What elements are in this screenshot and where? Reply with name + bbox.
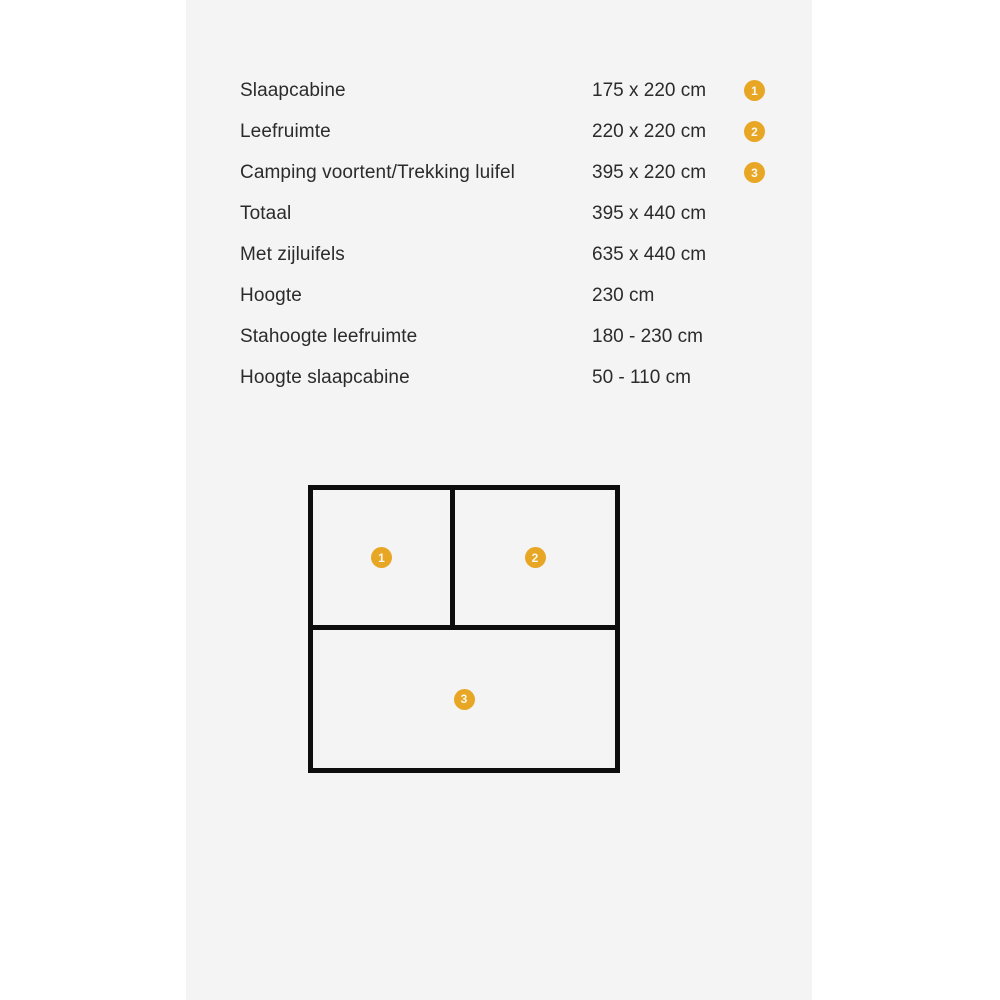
- floorplan-cell-slaapcabine: 1: [313, 490, 450, 625]
- spec-table: Slaapcabine 175 x 220 cm 1 Leefruimte 22…: [186, 70, 812, 398]
- spec-value: 50 - 110 cm: [592, 357, 691, 398]
- spec-panel: Slaapcabine 175 x 220 cm 1 Leefruimte 22…: [186, 0, 812, 1000]
- floorplan-badge-3: 3: [454, 689, 475, 710]
- spec-value: 220 x 220 cm: [592, 111, 706, 152]
- number-badge-3: 3: [744, 162, 765, 183]
- spec-value: 395 x 440 cm: [592, 193, 706, 234]
- spec-value: 230 cm: [592, 275, 654, 316]
- spec-value: 635 x 440 cm: [592, 234, 706, 275]
- floorplan-cell-voortent: 3: [313, 630, 615, 768]
- spec-row-hoogte-slaapcabine: Hoogte slaapcabine 50 - 110 cm: [186, 357, 812, 398]
- spec-value: 175 x 220 cm: [592, 70, 706, 111]
- spec-label: Stahoogte leefruimte: [240, 316, 417, 357]
- number-badge-1: 1: [744, 80, 765, 101]
- spec-row-hoogte: Hoogte 230 cm: [186, 275, 812, 316]
- floorplan-badge-2: 2: [525, 547, 546, 568]
- spec-row-slaapcabine: Slaapcabine 175 x 220 cm 1: [186, 70, 812, 111]
- spec-row-stahoogte: Stahoogte leefruimte 180 - 230 cm: [186, 316, 812, 357]
- spec-label: Camping voortent/Trekking luifel: [240, 152, 515, 193]
- spec-value: 180 - 230 cm: [592, 316, 703, 357]
- spec-label: Leefruimte: [240, 111, 331, 152]
- floorplan-badge-1: 1: [371, 547, 392, 568]
- spec-row-voortent: Camping voortent/Trekking luifel 395 x 2…: [186, 152, 812, 193]
- spec-value: 395 x 220 cm: [592, 152, 706, 193]
- spec-label: Totaal: [240, 193, 291, 234]
- spec-label: Met zijluifels: [240, 234, 345, 275]
- spec-row-leefruimte: Leefruimte 220 x 220 cm 2: [186, 111, 812, 152]
- spec-label: Hoogte slaapcabine: [240, 357, 410, 398]
- spec-label: Hoogte: [240, 275, 302, 316]
- floorplan-cell-leefruimte: 2: [455, 490, 615, 625]
- spec-label: Slaapcabine: [240, 70, 346, 111]
- spec-row-totaal: Totaal 395 x 440 cm: [186, 193, 812, 234]
- number-badge-2: 2: [744, 121, 765, 142]
- floorplan-diagram: 1 2 3: [308, 485, 620, 773]
- spec-row-zijluifels: Met zijluifels 635 x 440 cm: [186, 234, 812, 275]
